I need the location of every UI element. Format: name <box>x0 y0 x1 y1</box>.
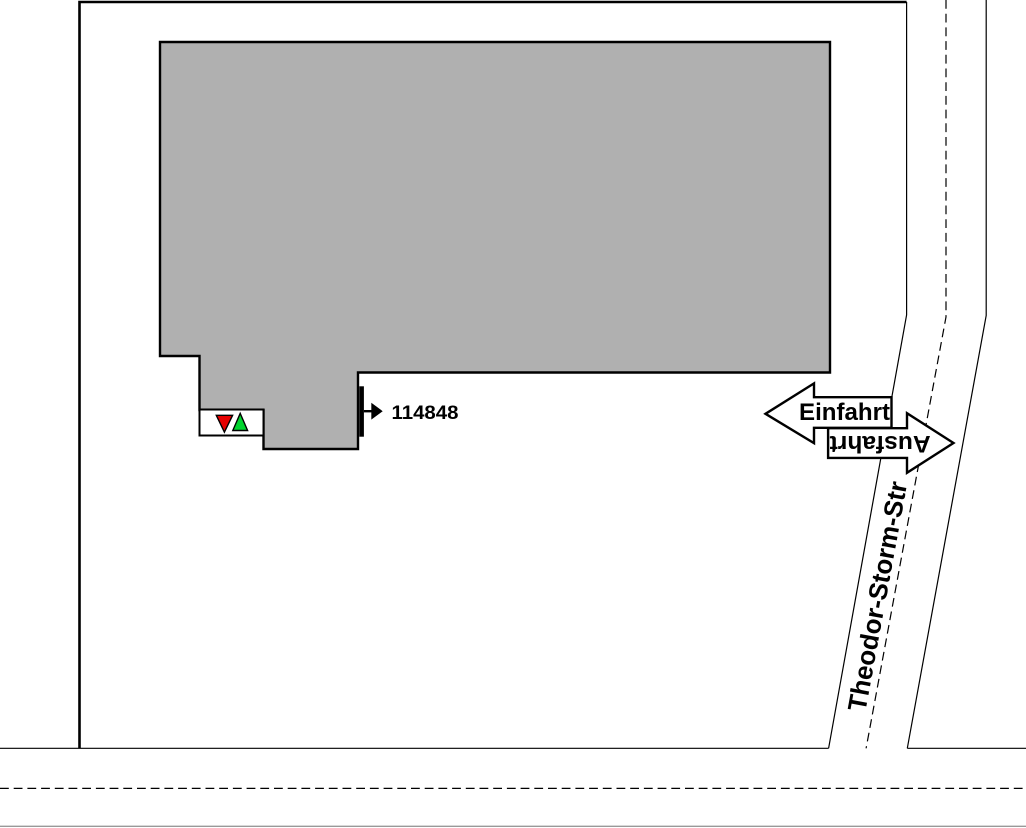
svg-text:Ausfahrt: Ausfahrt <box>830 430 931 457</box>
svg-text:Einfahrt: Einfahrt <box>799 399 890 426</box>
svg-text:114848: 114848 <box>392 402 459 424</box>
